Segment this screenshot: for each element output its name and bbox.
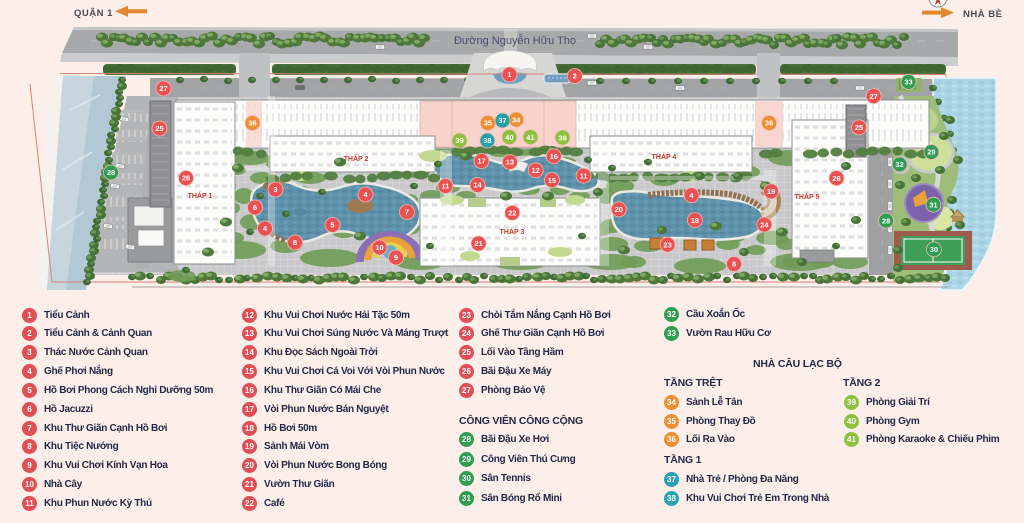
svg-text:QUẬN 1: QUẬN 1 [74,7,113,19]
svg-text:23: 23 [663,240,671,249]
svg-text:9: 9 [394,253,398,262]
svg-text:Đường Nguyễn Hữu Thọ: Đường Nguyễn Hữu Thọ [454,34,576,47]
svg-text:5: 5 [330,221,334,230]
svg-text:10: 10 [375,243,383,252]
svg-text:25: 25 [855,123,863,132]
svg-text:36: 36 [765,119,773,128]
svg-text:35: 35 [484,119,492,128]
svg-text:7: 7 [405,208,409,217]
svg-text:37: 37 [498,116,506,125]
svg-text:13: 13 [506,158,514,167]
svg-text:THÁP 3: THÁP 3 [500,227,525,236]
svg-text:36: 36 [248,119,256,128]
svg-text:8: 8 [293,238,297,247]
svg-text:24: 24 [760,220,769,229]
svg-text:28: 28 [882,216,890,225]
svg-text:27: 27 [870,92,878,101]
svg-text:THÁP 1: THÁP 1 [188,191,213,200]
svg-text:26: 26 [832,174,840,183]
svg-text:18: 18 [691,216,699,225]
svg-text:25: 25 [155,124,163,133]
svg-text:30: 30 [930,245,938,254]
svg-text:41: 41 [526,133,534,142]
svg-text:38: 38 [483,136,491,145]
svg-text:20: 20 [615,205,623,214]
svg-text:27: 27 [159,84,167,93]
svg-text:32: 32 [895,160,903,169]
svg-text:31: 31 [929,200,937,209]
svg-text:8: 8 [732,260,736,269]
svg-text:21: 21 [474,239,482,248]
svg-text:39: 39 [558,133,566,142]
svg-text:NHÀ BÈ: NHÀ BÈ [963,9,1002,20]
svg-text:11: 11 [442,182,450,191]
svg-text:THÁP 4: THÁP 4 [652,152,677,161]
svg-text:19: 19 [767,187,775,196]
svg-text:THÁP 2: THÁP 2 [344,154,369,163]
svg-text:THÁP 5: THÁP 5 [795,192,820,201]
svg-text:17: 17 [477,157,485,166]
svg-text:39: 39 [455,136,463,145]
svg-text:29: 29 [927,148,935,157]
svg-text:16: 16 [550,152,558,161]
svg-text:6: 6 [253,203,257,212]
svg-text:12: 12 [532,166,540,175]
svg-text:1: 1 [507,70,511,79]
svg-text:26: 26 [182,174,190,183]
svg-text:2: 2 [573,72,577,81]
svg-text:15: 15 [548,176,556,185]
svg-text:33: 33 [904,78,912,87]
svg-text:22: 22 [508,209,516,218]
svg-text:3: 3 [273,185,277,194]
svg-text:28: 28 [107,168,115,177]
svg-text:11: 11 [580,171,588,180]
svg-text:34: 34 [512,115,521,124]
svg-text:14: 14 [473,181,482,190]
svg-text:40: 40 [505,133,513,142]
